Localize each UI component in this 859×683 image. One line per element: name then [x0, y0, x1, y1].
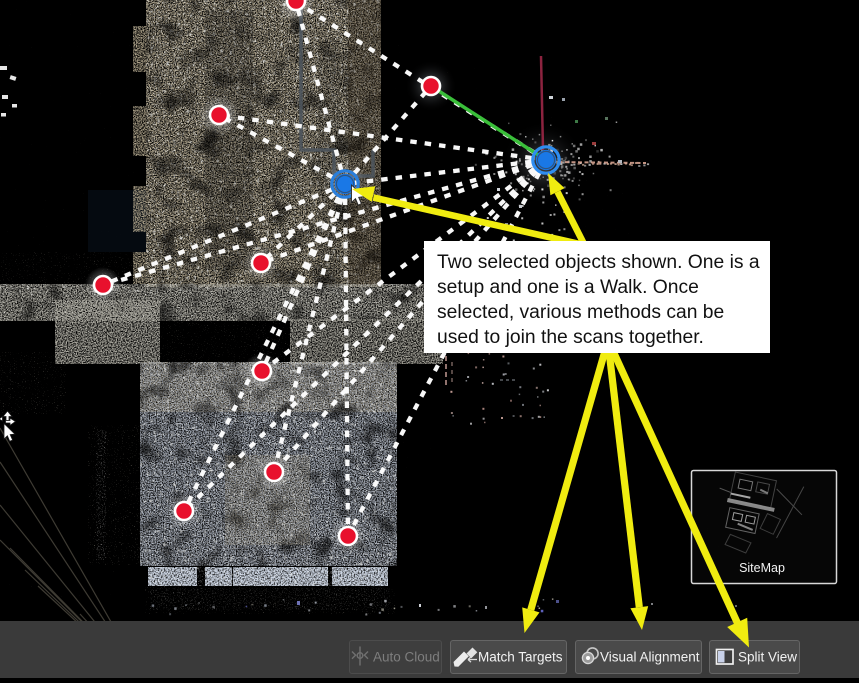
svg-text:setup and one is a Walk. Once: setup and one is a Walk. Once	[437, 277, 699, 298]
svg-text:selected, various methods can: selected, various methods can be	[437, 302, 724, 323]
svg-text:Two selected objects shown. On: Two selected objects shown. One is a	[437, 252, 760, 273]
svg-text:used to join the scans togethe: used to join the scans together.	[437, 327, 704, 348]
svg-text:Visual Alignment: Visual Alignment	[600, 650, 700, 665]
svg-text:Match Targets: Match Targets	[478, 650, 563, 665]
svg-text:Split View: Split View	[738, 650, 797, 665]
svg-text:SiteMap: SiteMap	[739, 561, 785, 575]
svg-text:Auto Cloud: Auto Cloud	[373, 650, 440, 665]
